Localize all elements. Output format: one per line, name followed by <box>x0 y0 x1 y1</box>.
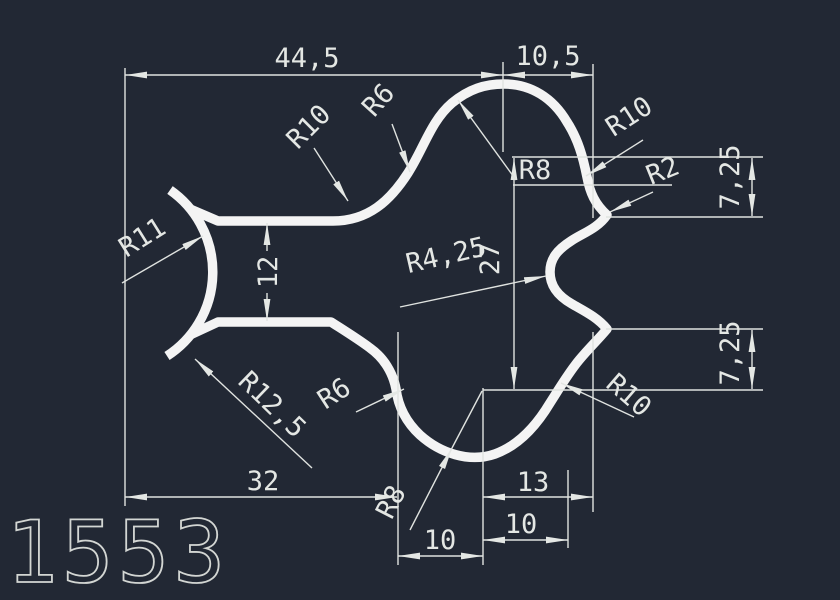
dim-7-25t-text: 7,25 <box>715 144 746 209</box>
dim-44-5-text: 44,5 <box>274 43 339 74</box>
dim-12-text: 12 <box>253 256 284 289</box>
r8-dome-text: R8 <box>519 155 552 186</box>
r10-bottomright-text: R10 <box>600 368 657 423</box>
leader-r10-topright <box>586 140 643 176</box>
dim-32-text: 32 <box>247 466 280 497</box>
leader-r10-topleft <box>314 148 348 201</box>
dim-10b-text: 10 <box>505 509 538 540</box>
leader-r6-top <box>392 124 410 172</box>
dim-10-5-text: 10,5 <box>515 41 580 72</box>
extrusion-profile <box>167 84 607 457</box>
extension-lines <box>125 62 763 565</box>
leader-r8-bottom-ext <box>452 391 482 448</box>
r8-bottom-text: R8 <box>370 481 412 524</box>
r11-text: R11 <box>114 212 172 264</box>
cad-drawing-canvas: 44,5 10,5 32 13 10 10 12 27 7,25 7,25 R1… <box>0 0 840 600</box>
r10-topright-text: R10 <box>600 91 658 144</box>
cad-drawing: 44,5 10,5 32 13 10 10 12 27 7,25 7,25 R1… <box>0 0 840 600</box>
leader-r2-topright <box>610 192 653 212</box>
leader-r8-dome <box>458 100 516 180</box>
leader-r4-25 <box>400 276 546 307</box>
part-number: 1553 <box>6 503 229 600</box>
dim-10a-text: 10 <box>424 525 457 556</box>
r10-topleft-text: R10 <box>281 99 337 155</box>
r6-bottom-text: R6 <box>312 372 356 416</box>
dim-7-25b-text: 7,25 <box>715 320 746 385</box>
dim-13-text: 13 <box>517 467 550 498</box>
r6-top-text: R6 <box>356 78 401 123</box>
dimension-lines <box>125 75 752 556</box>
leader-r8-bottom <box>410 448 452 530</box>
